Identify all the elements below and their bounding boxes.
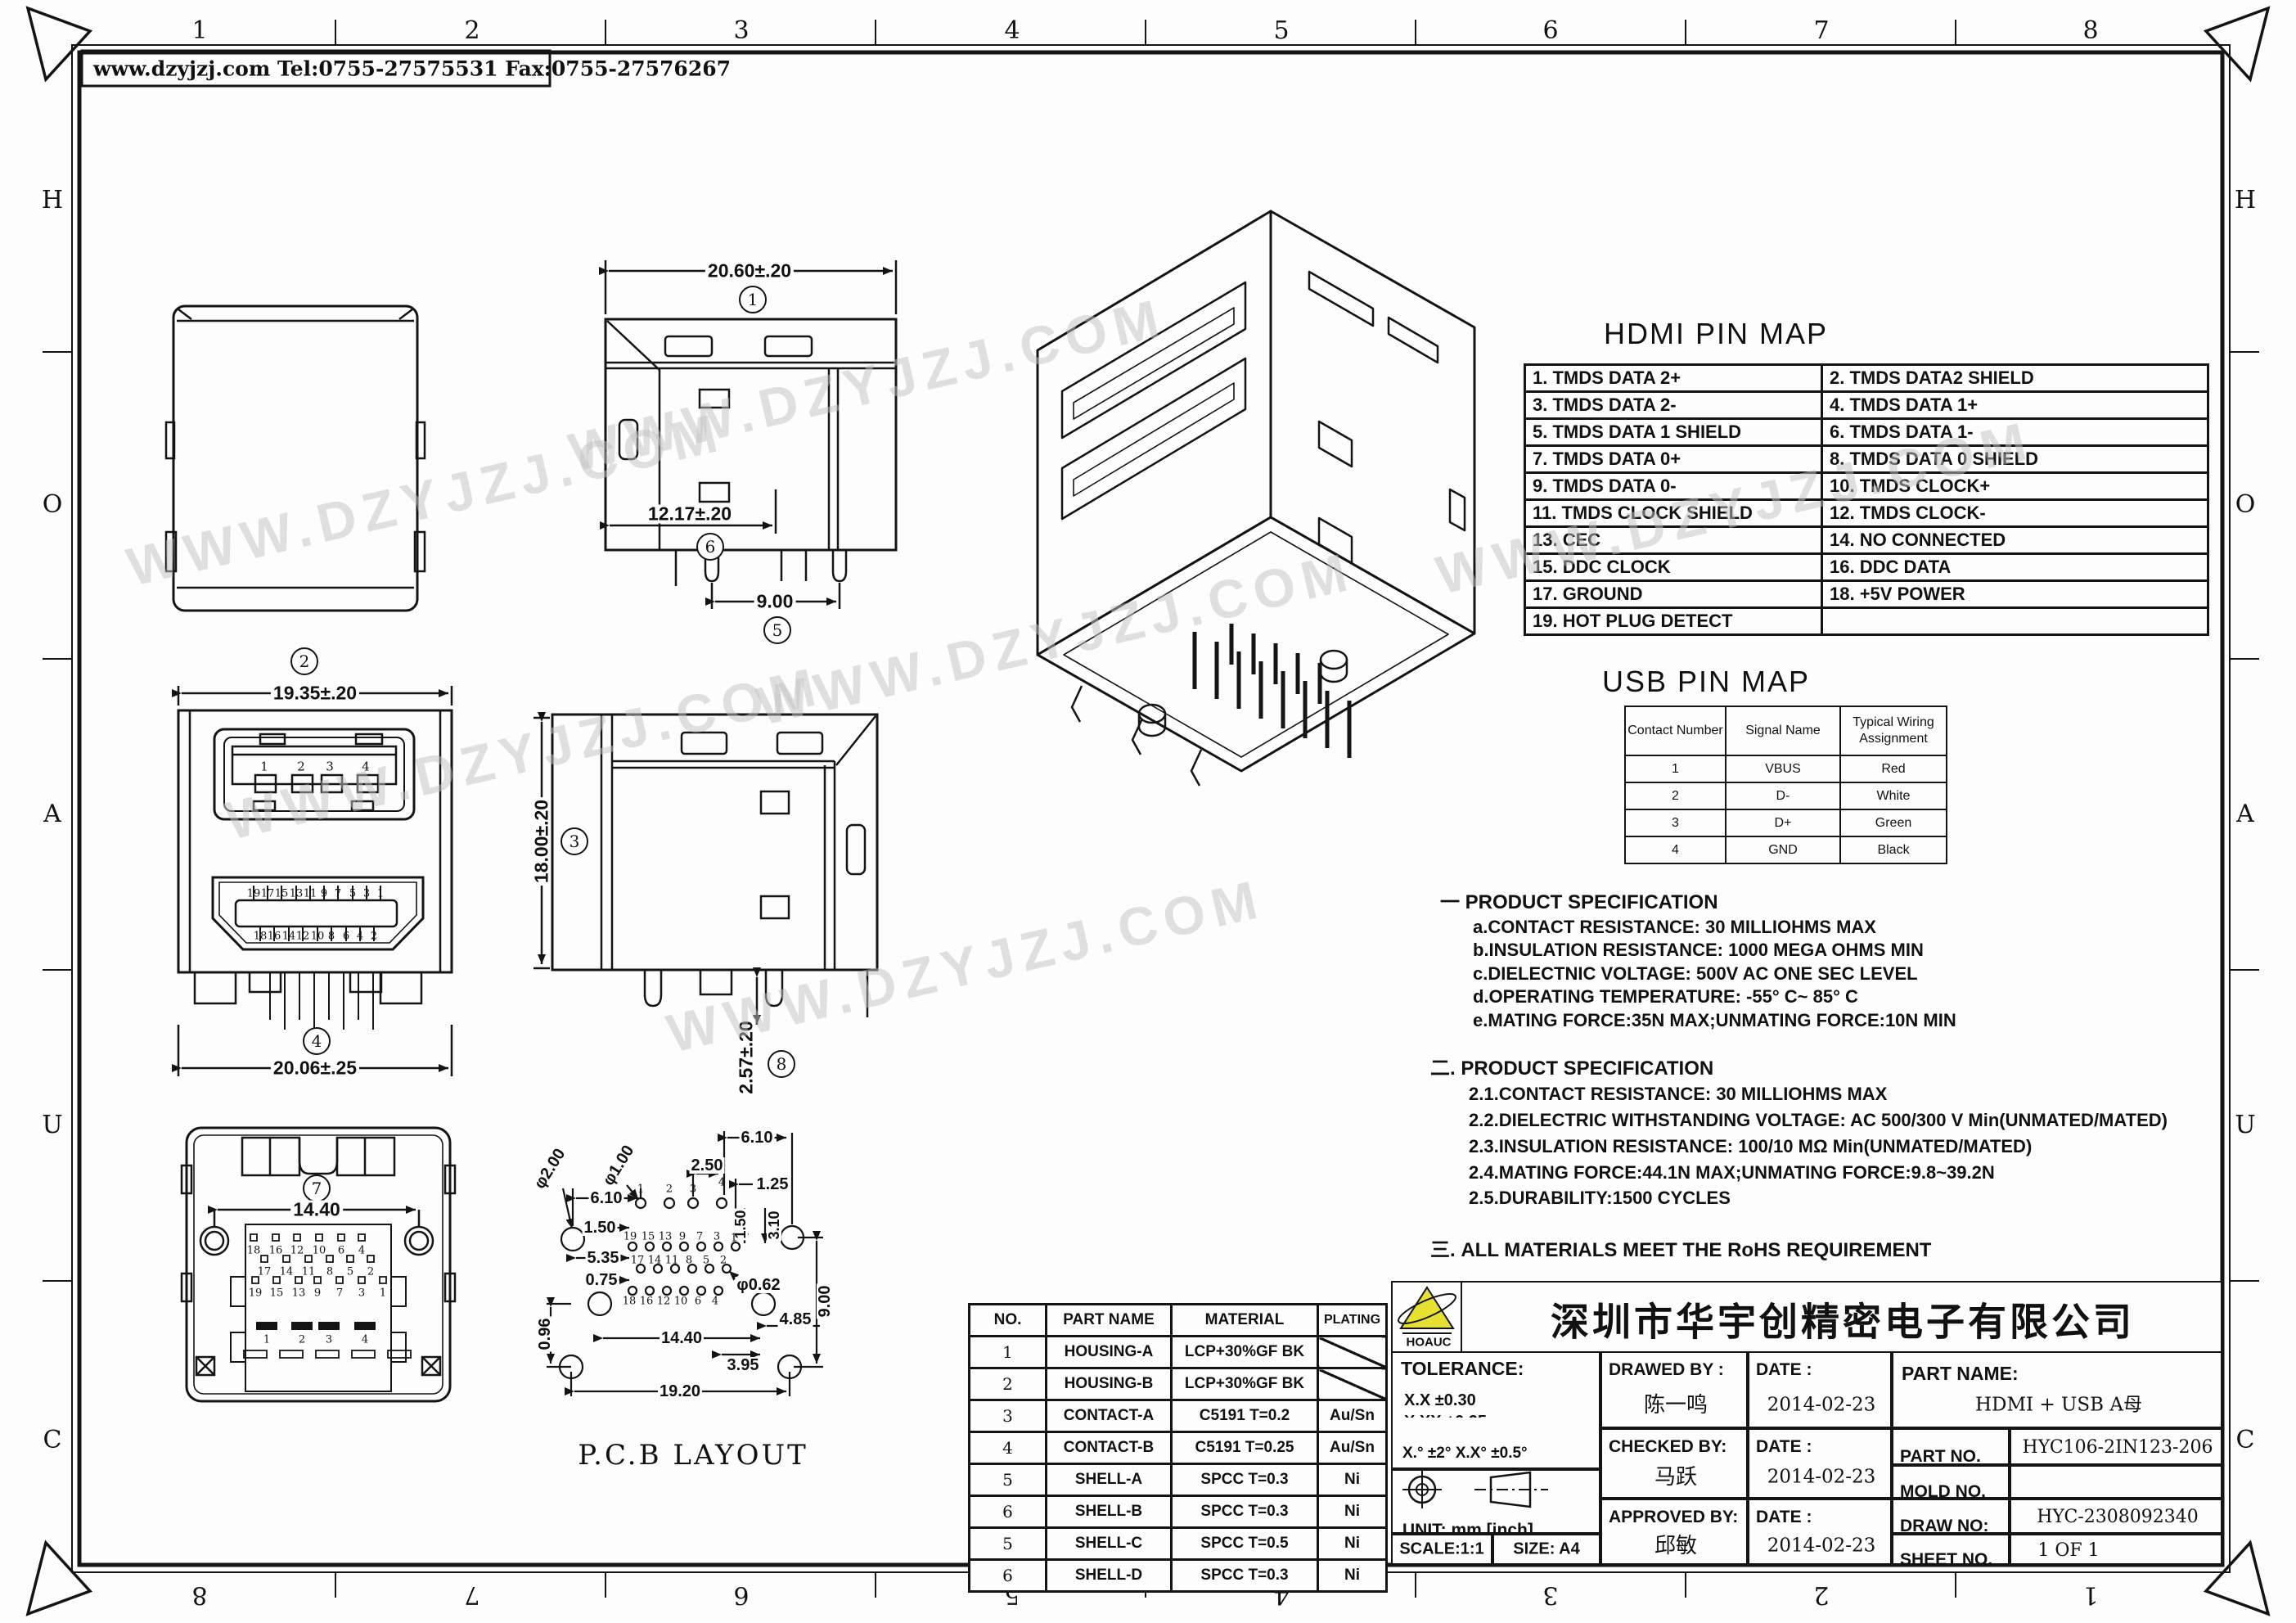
usb-cell: Green <box>1840 809 1947 836</box>
date-value: 2014-02-23 <box>1767 1468 1876 1487</box>
hdmi-pin-cell: 14. NO CONNECTED <box>1822 527 2208 554</box>
pcb-pin-number: 1 <box>731 1233 737 1244</box>
pcb-layout-title: P.C.B LAYOUT <box>578 1439 808 1472</box>
parts-cell: SHELL-A <box>1047 1464 1172 1496</box>
projection-symbol-icon <box>1393 1471 1597 1508</box>
parts-cell: SHELL-D <box>1047 1560 1172 1592</box>
hdmi-pin-cell: 13. CEC <box>1525 527 1822 554</box>
pin-number: 17 <box>258 1267 272 1278</box>
view-7-bottom-view <box>182 1128 455 1401</box>
pcb-dim: 5.35 <box>586 1250 621 1266</box>
part-no-label-cell: PART NO. <box>1892 1428 2010 1465</box>
parts-cell: SHELL-C <box>1047 1528 1172 1560</box>
angle-tolerance: X.° ±2° X.X° ±0.5° <box>1402 1445 1528 1461</box>
pcb-dim: 1.25 <box>755 1176 790 1192</box>
parts-header: PLATING <box>1318 1305 1387 1337</box>
pcb-pin-number: 4 <box>718 1178 725 1188</box>
zone-label-left: O <box>43 493 63 517</box>
parts-cell: 5 <box>970 1528 1047 1560</box>
draw-no-value: HYC-2308092340 <box>2037 1508 2199 1526</box>
pcb-pin-number: 1 <box>637 1184 644 1195</box>
part-name-cell: PART NAME: HDMI + USB A母 <box>1892 1351 2222 1428</box>
pcb-dim: 2.50 <box>690 1157 725 1174</box>
hdmi-pin-number: 9 <box>321 889 327 899</box>
pin-number: 18 <box>247 1246 261 1256</box>
balloon-5: 5 <box>763 616 791 644</box>
date-label: DATE : <box>1756 1438 1812 1455</box>
zone-label-left: H <box>42 188 63 213</box>
scale-label: SCALE:1:1 <box>1399 1540 1483 1559</box>
usb-pin-number: 1 <box>260 761 268 773</box>
zone-label-top: 1 <box>191 19 207 43</box>
checked-by-name: 马跃 <box>1654 1467 1697 1488</box>
pcb-pin-number: 10 <box>674 1296 688 1307</box>
date-label: DATE : <box>1756 1361 1812 1378</box>
zone-label-bottom: 8 <box>191 1582 207 1607</box>
parts-cell: Ni <box>1318 1464 1387 1496</box>
parts-header: PART NAME <box>1047 1305 1172 1337</box>
spec-line: 2.2.DIELECTRIC WITHSTANDING VOLTAGE: AC … <box>1469 1111 2168 1129</box>
usb-cell: D- <box>1726 782 1840 809</box>
sheet-no-value: 1 OF 1 <box>2037 1542 2099 1560</box>
parts-cell: HOUSING-A <box>1047 1337 1172 1368</box>
pcb-pin-number: 12 <box>657 1296 671 1307</box>
zone-label-bottom: 1 <box>2082 1582 2098 1607</box>
hdmi-pin-number: 15 <box>275 889 289 899</box>
date-value: 2014-02-23 <box>1767 1396 1876 1415</box>
parts-cell <box>1318 1337 1387 1368</box>
zone-label-bottom: 2 <box>1813 1582 1829 1607</box>
balloon-2: 2 <box>290 647 318 675</box>
parts-cell: 6 <box>970 1560 1047 1592</box>
date-cell: DATE : 2014-02-23 <box>1748 1428 1892 1499</box>
part-name-value: HDMI + USB A母 <box>1975 1396 2142 1415</box>
hdmi-pin-cell: 11. TMDS CLOCK SHIELD <box>1525 500 1822 527</box>
pin-number: 15 <box>270 1288 284 1299</box>
pcb-dim: 19.20 <box>658 1383 702 1400</box>
zone-label-left: A <box>43 802 61 827</box>
pin-number: 12 <box>290 1246 304 1256</box>
logo-text: HOAUC <box>1407 1336 1452 1350</box>
usb-cell: 4 <box>1625 836 1726 863</box>
zone-label-top: 4 <box>1004 19 1020 43</box>
zone-label-bottom: 6 <box>733 1582 749 1607</box>
drawed-by-cell: DRAWED BY : 陈一鸣 <box>1600 1351 1748 1428</box>
hdmi-pin-cell: 6. TMDS DATA 1- <box>1822 419 2208 446</box>
hdmi-pin-cell: 19. HOT PLUG DETECT <box>1525 608 1822 635</box>
hdmi-pin-number: 5 <box>349 889 356 899</box>
parts-cell: C5191 T=0.25 <box>1172 1432 1318 1464</box>
dim-pin-offset: 2.57±.20 <box>737 1018 756 1096</box>
usb-cell: 1 <box>1625 755 1726 782</box>
hdmi-pin-number: 13 <box>290 889 304 899</box>
hdmi-pin-cell: 8. TMDS DATA 0 SHIELD <box>1822 446 2208 473</box>
usb-cell: VBUS <box>1726 755 1840 782</box>
checked-by-cell: CHECKED BY: 马跃 <box>1600 1428 1748 1499</box>
spec-line: 2.5.DURABILITY:1500 CYCLES <box>1469 1189 1731 1207</box>
zone-label-left: U <box>42 1113 62 1138</box>
company-logo-cell: HOAUC <box>1391 1281 1463 1354</box>
sheet-no-value-cell: 1 OF 1 <box>2010 1534 2222 1565</box>
draw-no-label-cell: DRAW NO: <box>1892 1499 2010 1534</box>
parts-cell: HOUSING-B <box>1047 1368 1172 1400</box>
usb-pin-number: 3 <box>326 761 334 773</box>
usb-cell: 3 <box>1625 809 1726 836</box>
draw-no-label: DRAW NO: <box>1900 1517 1989 1535</box>
pcb-dim: 6.10 <box>740 1129 775 1146</box>
date-value: 2014-02-23 <box>1767 1537 1876 1556</box>
zone-label-right: C <box>2236 1428 2255 1453</box>
parts-header: NO. <box>970 1305 1047 1337</box>
spec-line: 2.4.MATING FORCE:44.1N MAX;UNMATING FORC… <box>1469 1164 1995 1182</box>
hdmi-pin-number: 12 <box>296 931 310 942</box>
hdmi-pin-cell: 4. TMDS DATA 1+ <box>1822 392 2208 419</box>
hdmi-pin-cell <box>1822 608 2208 635</box>
parts-cell: SPCC T=0.3 <box>1172 1560 1318 1592</box>
dim-span: 9.00 <box>754 593 796 611</box>
pcb-pin-number: 7 <box>696 1232 703 1242</box>
isometric-view <box>1038 211 1474 786</box>
pcb-pin-number: 11 <box>665 1256 679 1266</box>
usb-pin-number: 2 <box>297 761 305 773</box>
pcb-dim: 0.75 <box>584 1272 619 1288</box>
spec-line: c.DIELECTNIC VOLTAGE: 500V AC ONE SEC LE… <box>1473 965 1918 983</box>
hdmi-pin-number: 4 <box>357 931 363 942</box>
pin-number: 6 <box>338 1246 344 1256</box>
usb-cell: Red <box>1840 755 1947 782</box>
sheet-no-label-cell: SHEET NO. <box>1892 1534 2010 1565</box>
pin-number: 1 <box>380 1288 386 1299</box>
pcb-pin-number: 8 <box>686 1256 692 1266</box>
hdmi-pin-cell: 18. +5V POWER <box>1822 581 2208 608</box>
angle-tolerance-cell: X.° ±2° X.X° ±0.5° <box>1391 1418 1600 1469</box>
pcb-pin-number: 5 <box>703 1256 709 1266</box>
pcb-pin-number: 3 <box>690 1184 696 1195</box>
company-name: 深圳市华宇创精密电子有限公司 <box>1551 1291 2135 1347</box>
size-cell: SIZE: A4 <box>1492 1534 1600 1565</box>
hdmi-pin-number: 1 <box>377 889 384 899</box>
size-label: SIZE: A4 <box>1513 1540 1580 1559</box>
pcb-pin-number: 14 <box>648 1256 662 1266</box>
mold-no-value-cell <box>2010 1465 2222 1499</box>
usb-cell: GND <box>1726 836 1840 863</box>
pad-number: 3 <box>326 1335 332 1346</box>
balloon-3: 3 <box>560 827 588 855</box>
pcb-pin-number: 6 <box>695 1296 701 1307</box>
hdmi-pin-number: 3 <box>363 889 370 899</box>
parts-cell: CONTACT-A <box>1047 1400 1172 1432</box>
hdmi-pin-number: 18 <box>254 931 268 942</box>
pcb-pin-number: 18 <box>623 1296 637 1307</box>
hdmi-pin-map-title: HDMI PIN MAP <box>1604 319 1828 349</box>
spec-line: 2.1.CONTACT RESISTANCE: 30 MILLIOHMS MAX <box>1469 1085 1887 1103</box>
pcb-pin-number: 16 <box>640 1296 654 1307</box>
zone-label-top: 8 <box>2082 19 2098 43</box>
parts-cell: 2 <box>970 1368 1047 1400</box>
parts-cell: CONTACT-B <box>1047 1432 1172 1464</box>
pcb-dim: 4.85 <box>778 1311 813 1328</box>
pcb-pin-number: 3 <box>714 1232 720 1242</box>
engineering-drawing-sheet: 1 2 3 4 5 6 7 8 8 7 6 5 4 3 2 1 H O A U … <box>0 0 2296 1623</box>
usb-cell: Black <box>1840 836 1947 863</box>
spec-line: b.INSULATION RESISTANCE: 1000 MEGA OHMS … <box>1473 941 1924 959</box>
dim-face-width: 19.35±.20 <box>271 684 359 703</box>
dim-width: 20.60±.20 <box>705 262 794 281</box>
tolerance-line: X.X ±0.30 <box>1404 1392 1476 1409</box>
scale-cell: SCALE:1:1 <box>1391 1534 1492 1565</box>
dim-pitch: 12.17±.20 <box>646 505 734 524</box>
date-label: DATE : <box>1756 1508 1812 1526</box>
balloon-8: 8 <box>768 1050 795 1078</box>
zone-label-bottom: 3 <box>1542 1582 1558 1607</box>
hdmi-pin-number: 7 <box>335 889 341 899</box>
spec-section-1-title: 一 PRODUCT SPECIFICATION <box>1440 893 1718 913</box>
contact-header: www.dzyjzj.com Tel:0755-27575531 Fax:075… <box>93 57 731 81</box>
zone-label-right: U <box>2235 1113 2255 1138</box>
hdmi-pin-number: 6 <box>343 931 349 942</box>
parts-cell: Au/Sn <box>1318 1432 1387 1464</box>
usb-pin-map-title: USB PIN MAP <box>1602 667 1810 697</box>
hdmi-pin-number: 11 <box>304 889 317 899</box>
draw-no-value-cell: HYC-2308092340 <box>2010 1499 2222 1534</box>
approved-by-name: 邱敏 <box>1654 1535 1697 1557</box>
pad-number: 4 <box>362 1335 368 1346</box>
pcb-dim: 14.40 <box>660 1330 704 1346</box>
dim-overall-width: 20.06±.25 <box>271 1059 359 1078</box>
approved-by-cell: APPROVED BY: 邱敏 <box>1600 1499 1748 1565</box>
pin-number: 14 <box>280 1267 294 1278</box>
hdmi-pin-number: 2 <box>371 931 377 942</box>
hdmi-pin-cell: 2. TMDS DATA2 SHIELD <box>1822 365 2208 392</box>
pcb-pin-number: 9 <box>679 1232 686 1242</box>
parts-cell: Au/Sn <box>1318 1400 1387 1432</box>
zone-label-top: 6 <box>1542 19 1558 43</box>
parts-cell: 4 <box>970 1432 1047 1464</box>
pcb-dim: 0.96 <box>537 1317 553 1352</box>
zone-label-top: 2 <box>464 19 479 43</box>
hdmi-pin-cell: 5. TMDS DATA 1 SHIELD <box>1525 419 1822 446</box>
pcb-pin-number: 19 <box>624 1232 637 1242</box>
part-name-label: PART NAME: <box>1902 1364 2019 1383</box>
pin-number: 13 <box>292 1288 306 1299</box>
pcb-dim: 3.10 <box>767 1209 781 1241</box>
mold-no-label-cell: MOLD NO. <box>1892 1465 2010 1499</box>
parts-material-table: NO. PART NAME MATERIAL PLATING 1HOUSING-… <box>968 1303 1388 1593</box>
zone-label-top: 7 <box>1813 19 1829 43</box>
checked-by-label: CHECKED BY: <box>1609 1438 1727 1455</box>
part-no-value: HYC106-2IN123-206 <box>2023 1439 2213 1457</box>
hdmi-pin-number: 8 <box>328 931 335 942</box>
pin-number: 3 <box>358 1288 365 1299</box>
pin-number: 16 <box>269 1246 283 1256</box>
dim-height: 18.00±.20 <box>533 797 551 886</box>
parts-cell: 5 <box>970 1464 1047 1496</box>
pad-number: 2 <box>299 1335 305 1346</box>
parts-cell: SPCC T=0.5 <box>1172 1528 1318 1560</box>
parts-cell: Ni <box>1318 1560 1387 1592</box>
zone-label-top: 5 <box>1273 19 1289 43</box>
balloon-6: 6 <box>696 533 724 561</box>
hdmi-pin-cell: 7. TMDS DATA 0+ <box>1525 446 1822 473</box>
projection-unit-cell: UNIT: mm [inch] <box>1391 1469 1600 1534</box>
usb-pin-number: 4 <box>362 761 370 773</box>
hdmi-pin-cell: 17. GROUND <box>1525 581 1822 608</box>
pcb-pin-number: 15 <box>642 1232 655 1242</box>
parts-cell: 6 <box>970 1496 1047 1528</box>
spec-line: d.OPERATING TEMPERATURE: -55° C~ 85° C <box>1473 988 1858 1006</box>
spec-line: a.CONTACT RESISTANCE: 30 MILLIOHMS MAX <box>1473 918 1876 936</box>
pcb-pin-number: 13 <box>659 1232 673 1242</box>
pcb-pin-number: 2 <box>720 1256 727 1266</box>
hdmi-pin-number: 17 <box>261 889 275 899</box>
parts-cell: LCP+30%GF BK <box>1172 1368 1318 1400</box>
parts-cell: 1 <box>970 1337 1047 1368</box>
parts-cell: LCP+30%GF BK <box>1172 1337 1318 1368</box>
view-3-side-shell <box>533 715 877 1025</box>
usb-header: Signal Name <box>1726 706 1840 755</box>
approved-by-label: APPROVED BY: <box>1609 1508 1738 1526</box>
zone-label-top: 3 <box>733 19 749 43</box>
pin-number: 10 <box>313 1246 326 1256</box>
date-cell: DATE : 2014-02-23 <box>1748 1499 1892 1565</box>
drawed-by-label: DRAWED BY : <box>1609 1361 1724 1378</box>
parts-header: MATERIAL <box>1172 1305 1318 1337</box>
pcb-pin-number: 2 <box>666 1184 673 1195</box>
zone-label-right: A <box>2236 802 2254 827</box>
date-cell: DATE : 2014-02-23 <box>1748 1351 1892 1428</box>
parts-cell: Ni <box>1318 1528 1387 1560</box>
part-no-value-cell: HYC106-2IN123-206 <box>2010 1428 2222 1465</box>
hdmi-pin-map-table: 1. TMDS DATA 2+2. TMDS DATA2 SHIELD 3. T… <box>1524 363 2209 636</box>
view-4-mating-face <box>178 686 452 1076</box>
hdmi-pin-cell: 1. TMDS DATA 2+ <box>1525 365 1822 392</box>
zone-label-right: O <box>2235 493 2256 517</box>
pin-number: 2 <box>367 1267 374 1278</box>
parts-cell: SHELL-B <box>1047 1496 1172 1528</box>
hdmi-pin-cell: 3. TMDS DATA 2- <box>1525 392 1822 419</box>
pin-number: 19 <box>249 1288 263 1299</box>
usb-cell: 2 <box>1625 782 1726 809</box>
parts-cell: C5191 T=0.2 <box>1172 1400 1318 1432</box>
pcb-dim: 6.10 <box>589 1190 624 1206</box>
company-name-cell: 深圳市华宇创精密电子有限公司 <box>1461 1281 2222 1354</box>
zone-label-right: H <box>2235 188 2256 213</box>
sheet-no-label: SHEET NO. <box>1900 1551 1992 1568</box>
pin-number: 7 <box>336 1288 343 1299</box>
dim-hole-span: 14.40 <box>290 1201 343 1220</box>
usb-pin-map-table: Contact Number Signal Name Typical Wirin… <box>1624 706 1947 864</box>
usb-header: Contact Number <box>1625 706 1726 755</box>
parts-cell <box>1318 1368 1387 1400</box>
mold-no-label: MOLD NO. <box>1900 1483 1986 1500</box>
balloon-1: 1 <box>739 286 767 313</box>
hdmi-pin-cell: 12. TMDS CLOCK- <box>1822 500 2208 527</box>
hdmi-pin-cell: 15. DDC CLOCK <box>1525 554 1822 581</box>
spec-section-3: 三. ALL MATERIALS MEET THE RoHS REQUIREME… <box>1430 1241 1931 1260</box>
pcb-hole-dia: φ0.62 <box>735 1277 781 1293</box>
pcb-dim: 9.00 <box>817 1284 833 1319</box>
hdmi-pin-cell: 10. TMDS CLOCK+ <box>1822 473 2208 500</box>
usb-header: Typical Wiring Assignment <box>1840 706 1947 755</box>
pcb-dim: 1.50 <box>583 1220 618 1236</box>
pad-number: 1 <box>263 1335 270 1346</box>
balloon-4: 4 <box>303 1027 331 1055</box>
zone-label-bottom: 7 <box>464 1582 479 1607</box>
spec-section-2-title: 二. PRODUCT SPECIFICATION <box>1430 1059 1713 1079</box>
pin-number: 11 <box>302 1267 316 1278</box>
spec-line: 2.3.INSULATION RESISTANCE: 100/10 MΩ Min… <box>1469 1138 2032 1156</box>
pin-number: 8 <box>326 1267 333 1278</box>
parts-cell: 3 <box>970 1400 1047 1432</box>
pin-number: 5 <box>347 1267 353 1278</box>
pin-number: 9 <box>314 1288 321 1299</box>
parts-cell: SPCC T=0.3 <box>1172 1496 1318 1528</box>
pcb-pin-number: 17 <box>631 1256 645 1266</box>
part-no-label: PART NO. <box>1900 1448 1981 1465</box>
drawed-by-name: 陈一鸣 <box>1644 1395 1708 1416</box>
hdmi-pin-number: 16 <box>268 931 281 942</box>
usb-cell: White <box>1840 782 1947 809</box>
hdmi-pin-number: 10 <box>311 931 325 942</box>
parts-cell: SPCC T=0.3 <box>1172 1464 1318 1496</box>
zone-label-left: C <box>43 1428 62 1453</box>
parts-cell: Ni <box>1318 1496 1387 1528</box>
hdmi-pin-number: 19 <box>247 889 261 899</box>
spec-line: e.MATING FORCE:35N MAX;UNMATING FORCE:10… <box>1473 1012 1956 1030</box>
hdmi-pin-number: 14 <box>282 931 296 942</box>
view-2-side-shell <box>166 306 425 611</box>
hdmi-pin-cell: 9. TMDS DATA 0- <box>1525 473 1822 500</box>
usb-cell: D+ <box>1726 809 1840 836</box>
tolerance-label: TOLERANCE: <box>1401 1359 1524 1378</box>
pin-number: 4 <box>358 1246 365 1256</box>
hdmi-pin-cell: 16. DDC DATA <box>1822 554 2208 581</box>
pcb-dim: 3.95 <box>726 1357 761 1373</box>
pcb-pin-number: 4 <box>712 1296 718 1307</box>
